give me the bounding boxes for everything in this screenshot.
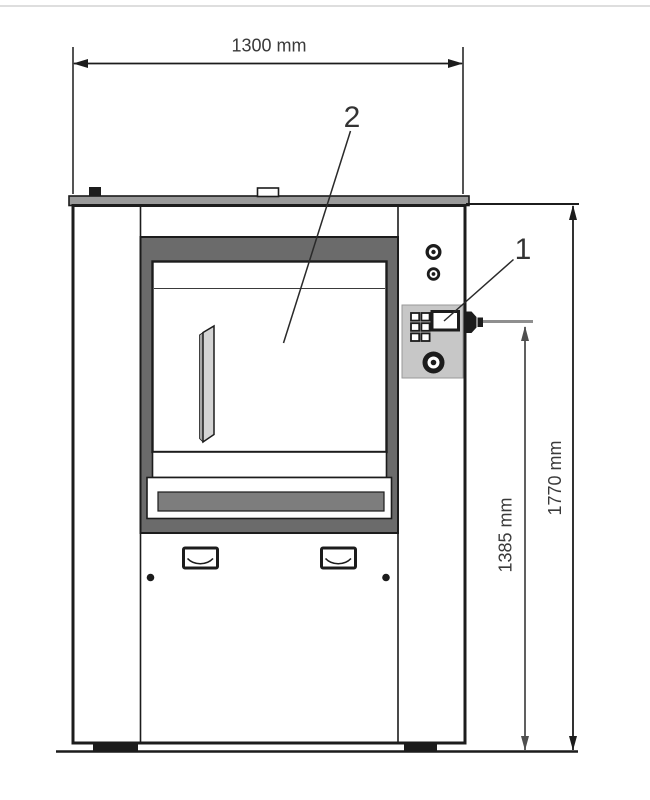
- technical-drawing: 1300 mm 1770 mm 1385 mm 1 2: [0, 0, 650, 800]
- dispenser-tray-bar: [158, 492, 384, 511]
- pull-handle-left: [184, 548, 218, 568]
- arrow-down-icon: [569, 736, 577, 751]
- door-handle: [203, 326, 214, 442]
- callout-2-label: 2: [344, 101, 361, 134]
- lid-block: [89, 187, 101, 197]
- screw-left: [147, 574, 155, 582]
- keypad-button: [421, 323, 429, 331]
- keypad-button: [421, 333, 429, 341]
- diagram-page: 1300 mm 1770 mm 1385 mm 1 2: [0, 0, 650, 800]
- keypad-button: [411, 333, 419, 341]
- arrow-up-icon: [521, 326, 529, 341]
- total-height-dimension-label: 1770 mm: [545, 440, 565, 515]
- keypad-button: [421, 313, 429, 321]
- arrow-up-icon: [569, 205, 577, 220]
- lid-latch: [258, 188, 279, 197]
- door-window: [153, 262, 387, 453]
- dimension-width: 1300 mm: [73, 36, 463, 195]
- foot-right: [404, 744, 437, 751]
- control-height-dimension-label: 1385 mm: [496, 497, 516, 572]
- screw-right: [382, 574, 390, 582]
- door-bottom-band: [153, 452, 387, 478]
- keypad-button: [411, 323, 419, 331]
- indicator-button-large: [426, 244, 442, 260]
- dimension-control-height: 1385 mm: [483, 322, 533, 751]
- foot-left: [93, 744, 138, 751]
- arrow-left-icon: [73, 59, 88, 68]
- emergency-stop-side: [466, 312, 483, 334]
- program-knob: [423, 352, 445, 374]
- callout-1-label: 1: [515, 233, 532, 266]
- arrow-down-icon: [521, 736, 529, 751]
- width-dimension-label: 1300 mm: [231, 36, 306, 56]
- indicator-button-small: [427, 267, 440, 280]
- pull-handle-right: [322, 548, 356, 568]
- keypad-button: [411, 313, 419, 321]
- arrow-right-icon: [448, 59, 463, 68]
